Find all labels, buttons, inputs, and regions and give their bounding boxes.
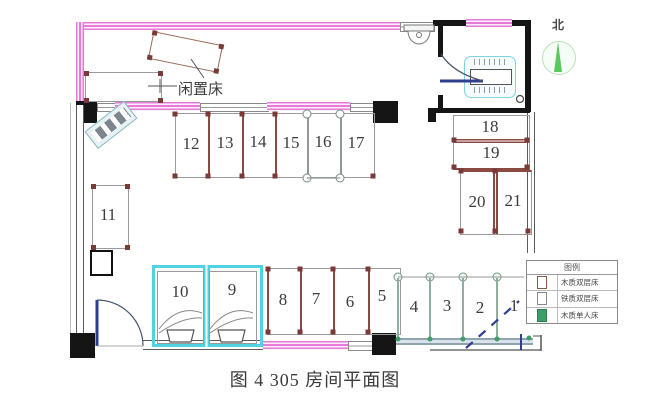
bed-post-dot: [371, 174, 376, 179]
bed-post-dot: [173, 112, 178, 117]
bed-number-2: 2: [476, 298, 485, 318]
bed-post-dot: [152, 30, 158, 36]
bed-post-dot: [206, 112, 211, 117]
bathroom-left-wall-lower: [438, 95, 443, 113]
bed-divider: [333, 269, 335, 334]
north-needle-icon: [554, 42, 562, 72]
bed-post-dot: [459, 169, 464, 174]
bed-number-17: 17: [348, 133, 365, 153]
bed-post-dot: [84, 98, 89, 103]
bed-post-dot: [493, 169, 498, 174]
bed-post-dot: [331, 330, 336, 335]
bed-divider-iron: [340, 114, 342, 177]
single-bed-post-circle: [459, 273, 468, 282]
iron-bed-post-circle: [303, 174, 312, 183]
bed-post-dot: [298, 330, 303, 335]
bottom-wall-right: [396, 338, 533, 345]
idle-bed-tilted: [148, 31, 223, 73]
fixture-hatch-bottom: [474, 87, 506, 93]
bed-post-dot: [240, 174, 245, 179]
bed-post-dot: [266, 267, 271, 272]
bed-divider-iron: [307, 114, 309, 177]
bed-post-dot: [366, 267, 371, 272]
bed-post-dot: [158, 71, 163, 76]
bed-post-dot: [525, 138, 530, 143]
column-entrance: [70, 333, 95, 358]
legend-item-label: 木质双层床: [558, 275, 617, 290]
idle-bed-horizontal: [85, 72, 162, 102]
legend-item-label: 木质单人床: [558, 308, 617, 323]
window-bottom: [348, 341, 374, 351]
bottom-wall-pink: [263, 341, 348, 350]
bed-number-15: 15: [283, 133, 300, 153]
fixture-hatch-top: [474, 59, 506, 65]
bed-post-dot: [452, 165, 457, 170]
north-label: 北: [552, 16, 564, 33]
bed-divider: [368, 269, 370, 334]
legend-item: 木质单人床: [527, 308, 617, 323]
bed-number-4: 4: [410, 297, 419, 317]
iron-bed-post-circle: [336, 174, 345, 183]
bed-post-dot: [158, 98, 163, 103]
bed-number-9: 9: [228, 280, 237, 300]
bed-post-dot: [125, 245, 130, 250]
bed-number-13: 13: [217, 133, 234, 153]
bed-post-dot: [206, 174, 211, 179]
balcony-top-wall: [76, 22, 400, 30]
bed-divider: [300, 269, 302, 334]
bed-post-dot: [459, 229, 464, 234]
nightstand: [90, 250, 113, 276]
bathroom-left-wall-upper: [438, 26, 443, 57]
bed-number-16: 16: [315, 132, 332, 152]
bed-post-dot: [526, 229, 531, 234]
iron-bed-post-circle: [336, 110, 345, 119]
bed-divider: [242, 114, 244, 177]
bed-post-dot: [273, 112, 278, 117]
column-c: [372, 333, 396, 355]
bed-post-dot: [525, 165, 530, 170]
legend-item: 木质双层床: [527, 275, 617, 291]
single-bed-post-circle: [426, 273, 435, 282]
bed-post-dot: [84, 71, 89, 76]
bed-number-7: 7: [312, 289, 321, 309]
bed-number-21: 21: [505, 191, 522, 211]
bed-divider: [275, 114, 277, 177]
single-bed-post-circle: [394, 273, 403, 282]
bed-post-dot: [452, 138, 457, 143]
bed-post-dot: [298, 267, 303, 272]
bed-post-dot: [125, 184, 130, 189]
floor-plan: 闲置床 北: [0, 0, 650, 402]
bathroom-bottom-wall: [433, 108, 530, 113]
window-top: [400, 22, 435, 32]
single-bed-post-circle: [493, 273, 502, 282]
bathroom-window: [466, 19, 512, 27]
figure-caption: 图 4 305 房间平面图: [175, 366, 455, 392]
bed-number-10: 10: [172, 282, 189, 302]
bathroom-right-wall: [525, 20, 531, 112]
bed-number-8: 8: [279, 290, 288, 310]
bed-number-18: 18: [482, 117, 499, 137]
bed-number-20: 20: [469, 192, 486, 212]
bed-post-dot: [147, 55, 153, 61]
bed-post-dot: [91, 184, 96, 189]
balcony-left-wall: [76, 22, 84, 105]
wood-single-bed-swatch: [537, 309, 547, 322]
bed-number-6: 6: [346, 292, 355, 312]
bed-number-5: 5: [378, 286, 387, 306]
bed-post-dot: [366, 330, 371, 335]
bed-post-dot: [218, 44, 224, 50]
bed-post-dot: [273, 174, 278, 179]
bed-number-14: 14: [250, 132, 267, 152]
idle-bed-label: 闲置床: [178, 78, 223, 99]
bed-post-dot: [213, 68, 219, 74]
bathroom-bottom-notch: [428, 108, 436, 122]
bed-post-dot: [331, 267, 336, 272]
legend: 图例 木质双层床 铁质双层床 木质单人床: [526, 260, 618, 324]
column-b: [373, 101, 398, 123]
bed-row-12-17: [175, 113, 375, 178]
bed-number-1: 1: [510, 296, 519, 316]
iron-bunk-bed-swatch: [537, 292, 547, 305]
bed-number-12: 12: [183, 134, 200, 154]
outer-boundary-line: [70, 103, 71, 355]
window-interior-3: [350, 103, 375, 112]
fixture-inner: [470, 69, 512, 85]
bed-divider: [493, 172, 498, 234]
left-wall: [76, 105, 84, 345]
bed-post-dot: [493, 229, 498, 234]
legend-item-label: 铁质双层床: [558, 291, 617, 306]
bed-number-3: 3: [443, 296, 452, 316]
bed-number-11: 11: [100, 205, 116, 225]
iron-bed-post-circle: [303, 110, 312, 119]
bed-post-dot: [173, 174, 178, 179]
legend-title: 图例: [527, 261, 617, 275]
bed-post-dot: [240, 112, 245, 117]
bed-post-dot: [266, 330, 271, 335]
bed-number-19: 19: [483, 143, 500, 163]
bed-divider: [208, 114, 210, 177]
legend-item: 铁质双层床: [527, 291, 617, 307]
wood-bunk-bed-swatch: [537, 276, 547, 289]
